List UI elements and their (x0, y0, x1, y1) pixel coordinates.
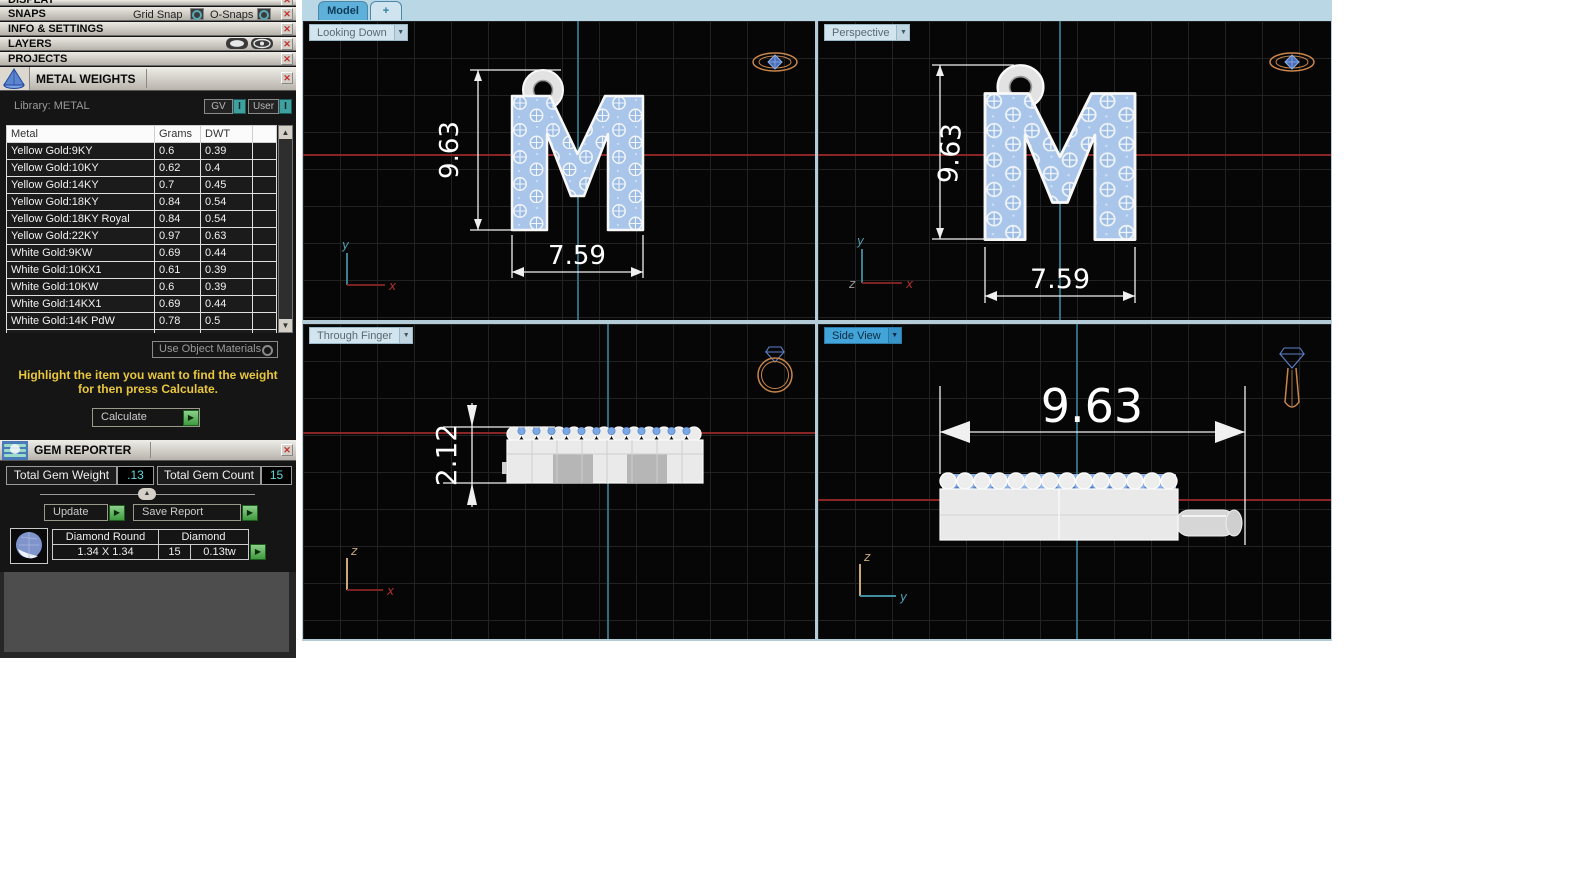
close-icon[interactable]: ✕ (281, 53, 293, 65)
panel-header-gem-reporter[interactable]: GEM REPORTER ✕ (0, 440, 296, 461)
metal-table-cell: 0.84 (155, 211, 201, 228)
metal-table-cell: 0.62 (155, 160, 201, 177)
metal-table-row[interactable]: White Gold:14K PdW0.780.5 (7, 313, 277, 330)
gem-row-go-icon[interactable]: ▶ (250, 544, 266, 560)
save-report-label: Save Report (142, 506, 203, 518)
chevron-down-icon[interactable]: ▼ (399, 327, 413, 344)
metal-table-cell: 0.54 (201, 211, 253, 228)
metal-table-cell: 0.84 (155, 194, 201, 211)
close-icon[interactable]: ✕ (281, 38, 293, 50)
table-scrollbar[interactable]: ▲ ▼ (278, 125, 293, 333)
metal-table-cell: White Gold:10KW (7, 279, 155, 296)
metal-table-cell: Yellow Gold:14KY (7, 177, 155, 194)
metal-table-cell: 0.39 (201, 143, 253, 160)
metal-table-row[interactable]: Yellow Gold:18KY0.840.54 (7, 194, 277, 211)
metal-table-row[interactable]: White Gold:10KX10.610.39 (7, 262, 277, 279)
metal-table-cell: 0.78 (155, 313, 201, 330)
gv-toggle[interactable]: I (233, 99, 246, 114)
calculate-go-icon[interactable]: ▶ (183, 410, 199, 426)
metal-table-row[interactable]: Yellow Gold:9KY0.60.39 (7, 143, 277, 160)
svg-text:z: z (848, 277, 856, 291)
panel-header-display[interactable]: DISPLAY ✕ (0, 0, 296, 6)
metal-table-cell (253, 262, 277, 279)
metal-weights-table: Metal Grams DWT Yellow Gold:9KY0.60.39Ye… (6, 125, 277, 333)
dimension-thickness: 2.12 (430, 424, 463, 486)
svg-text:x: x (386, 584, 395, 598)
save-report-go-icon[interactable]: ▶ (242, 505, 258, 521)
metal-table-cell: White Gold:10KX1 (7, 262, 155, 279)
metal-table-cell: 0.54 (201, 194, 253, 211)
panel-title-metal-weights: METAL WEIGHTS (36, 72, 136, 86)
metal-table-cell (253, 279, 277, 296)
metal-table-row[interactable]: White Gold:10KW0.60.39 (7, 279, 277, 296)
viewport-area: Model + Looking Down ▼ (302, 0, 1332, 641)
use-object-materials-label: Use Object Materials (159, 343, 261, 355)
metal-table-cell: 0.81 (155, 330, 201, 334)
metal-table-cell: 0.44 (201, 245, 253, 262)
dimension-height: 9.63 (435, 121, 465, 179)
close-icon[interactable]: ✕ (281, 0, 293, 6)
dimension-height: 9.63 (933, 122, 968, 184)
gem-reporter-body-empty (4, 572, 289, 652)
viewport-tabbar: Model + (302, 0, 1332, 21)
update-go-icon[interactable]: ▶ (109, 505, 125, 521)
metal-table-cell (253, 296, 277, 313)
close-icon[interactable]: ✕ (281, 444, 293, 456)
dimension-width: 7.59 (548, 241, 606, 271)
panel-title-layers: LAYERS (8, 38, 52, 50)
metal-table-cell: Yellow Gold:22KY (7, 228, 155, 245)
svg-text:x: x (388, 279, 397, 293)
ring-widget-icon[interactable] (1270, 53, 1314, 71)
scroll-down-icon[interactable]: ▼ (279, 319, 292, 332)
metal-table-cell: 0.7 (155, 177, 201, 194)
metal-table-cell (253, 160, 277, 177)
metal-table-cell: 0.39 (201, 279, 253, 296)
svg-text:z: z (863, 550, 871, 564)
sidebar: DISPLAY ✕ SNAPS Grid Snap O-Snaps ✕ INFO… (0, 0, 296, 658)
pendant-profile-view[interactable] (502, 427, 703, 483)
close-icon[interactable]: ✕ (281, 8, 293, 20)
total-gem-weight-value: .13 (117, 466, 154, 485)
panel-title-snaps: SNAPS (8, 8, 46, 20)
axis-indicator: y z x (848, 234, 914, 291)
pendant-side-view[interactable] (940, 473, 1242, 540)
metal-table-row[interactable]: Yellow Gold:22KY0.970.63 (7, 228, 277, 245)
slider-thumb[interactable]: ▲ (138, 488, 156, 500)
gem-material-header: Diamond (158, 529, 249, 545)
chevron-down-icon[interactable]: ▼ (896, 24, 910, 41)
gem-cut-header: Diamond Round (52, 529, 159, 545)
total-gem-weight-label: Total Gem Weight (6, 466, 117, 485)
update-button[interactable]: Update (44, 504, 108, 521)
metal-table-cell (253, 143, 277, 160)
view-label: Perspective (824, 24, 896, 41)
metal-table-row[interactable]: White Gold:18KW0.810.52 (7, 330, 277, 334)
metal-table-cell (253, 245, 277, 262)
metal-table-cell (253, 211, 277, 228)
eye-icon[interactable] (251, 38, 273, 49)
tab-model[interactable]: Model (318, 1, 368, 20)
metal-weights-icon (0, 67, 30, 90)
total-gem-count-value: 15 (261, 466, 292, 485)
metal-table-cell: 0.69 (155, 296, 201, 313)
metal-table-cell: 0.5 (201, 313, 253, 330)
panel-header-info-settings[interactable]: INFO & SETTINGS ✕ (0, 22, 296, 36)
metal-table-cell: White Gold:18KW (7, 330, 155, 334)
metal-table-cell: 0.69 (155, 245, 201, 262)
metal-table-cell: White Gold:9KW (7, 245, 155, 262)
metal-table-row[interactable]: Yellow Gold:10KY0.620.4 (7, 160, 277, 177)
save-report-button[interactable]: Save Report (133, 504, 241, 521)
svg-text:y: y (341, 238, 350, 252)
metal-table-row[interactable]: Yellow Gold:14KY0.70.45 (7, 177, 277, 194)
header-divider (150, 442, 151, 458)
dimension-length: 9.63 (1041, 379, 1143, 433)
gem-reporter-body-frame (0, 572, 296, 658)
total-gem-count-label: Total Gem Count (157, 466, 261, 485)
col-header-dwt[interactable]: DWT (201, 126, 253, 143)
grid-snap-toggle[interactable] (190, 8, 204, 20)
metal-table-cell: 0.45 (201, 177, 253, 194)
update-label: Update (53, 506, 88, 518)
gv-button[interactable]: GV (204, 99, 233, 114)
view-selector-perspective[interactable]: Perspective ▼ (824, 24, 910, 41)
metal-table-cell (253, 313, 277, 330)
user-toggle[interactable]: I (279, 99, 292, 114)
metal-table-cell: 0.39 (201, 262, 253, 279)
dimension-width: 7.59 (1030, 264, 1090, 295)
viewport-looking-down[interactable]: Looking Down ▼ (303, 21, 815, 320)
view-selector-side-view[interactable]: Side View ▼ (824, 327, 902, 344)
metal-table-body: Yellow Gold:9KY0.60.39Yellow Gold:10KY0.… (7, 143, 277, 334)
metal-table-row[interactable]: White Gold:9KW0.690.44 (7, 245, 277, 262)
panel-title-projects: PROJECTS (8, 53, 67, 65)
metal-table-header-row: Metal Grams DWT (7, 126, 277, 143)
col-header-metal[interactable]: Metal (7, 126, 155, 143)
metal-table-cell: 0.4 (201, 160, 253, 177)
gem-reporter-icon (2, 441, 28, 460)
panel-title-display: DISPLAY (8, 0, 55, 6)
svg-text:x: x (905, 277, 914, 291)
metal-table-cell (253, 228, 277, 245)
user-button[interactable]: User (248, 99, 279, 114)
ring-widget-icon[interactable] (753, 53, 797, 71)
metal-table-cell (253, 177, 277, 194)
panel-header-snaps[interactable]: SNAPS Grid Snap O-Snaps ✕ (0, 7, 296, 21)
panel-title-info-settings: INFO & SETTINGS (8, 23, 103, 35)
metal-table-cell: 0.97 (155, 228, 201, 245)
axis-indicator: y x (341, 238, 397, 293)
metal-table-cell: Yellow Gold:18KY (7, 194, 155, 211)
metal-table-cell: 0.52 (201, 330, 253, 334)
metal-table-cell: Yellow Gold:10KY (7, 160, 155, 177)
library-label: Library: METAL (14, 100, 90, 112)
axis-indicator: z x (347, 544, 395, 598)
gem-weight-value: 0.13tw (190, 544, 249, 560)
chevron-down-icon[interactable]: ▼ (394, 24, 408, 41)
metal-table-cell (253, 330, 277, 334)
o-snaps-toggle[interactable] (257, 8, 271, 20)
view-label: Side View (824, 327, 888, 344)
panel-header-metal-weights[interactable]: METAL WEIGHTS ✕ (0, 67, 296, 91)
panel-title-gem-reporter: GEM REPORTER (34, 443, 131, 457)
gem-count-value: 15 (158, 544, 191, 560)
svg-text:z: z (350, 544, 358, 558)
viewport-through-finger[interactable]: Through Finger ▼ (303, 324, 815, 639)
metal-table-cell (253, 194, 277, 211)
viewport-side-view[interactable]: Side View ▼ (818, 324, 1331, 639)
col-header-grams[interactable]: Grams (155, 126, 201, 143)
metal-table-cell: White Gold:14KX1 (7, 296, 155, 313)
add-tab-icon: + (383, 5, 389, 17)
metal-table-cell: 0.61 (155, 262, 201, 279)
view-selector-looking-down[interactable]: Looking Down ▼ (309, 24, 408, 41)
axis-indicator: z y (860, 550, 908, 604)
svg-text:y: y (856, 234, 865, 248)
metal-table-cell: 0.6 (155, 143, 201, 160)
grid-snap-label: Grid Snap (133, 8, 183, 22)
metal-table-row[interactable]: White Gold:14KX10.690.44 (7, 296, 277, 313)
radio-circle-icon (262, 345, 273, 356)
ring-widget-icon[interactable] (1280, 348, 1304, 407)
scroll-up-icon[interactable]: ▲ (279, 126, 292, 139)
hint-text-line2: for then press Calculate. (0, 382, 296, 396)
gem-size-value: 1.34 X 1.34 (52, 544, 159, 560)
chevron-down-icon[interactable]: ▼ (888, 327, 902, 344)
metal-table-cell: Yellow Gold:18KY Royal (7, 211, 155, 228)
metal-table-row[interactable]: Yellow Gold:18KY Royal0.840.54 (7, 211, 277, 228)
calculate-label: Calculate (101, 411, 147, 423)
use-object-materials-button[interactable]: Use Object Materials (152, 341, 278, 358)
metal-table-cell: 0.6 (155, 279, 201, 296)
ring-widget-icon[interactable] (758, 347, 792, 392)
tab-model-label: Model (327, 5, 359, 17)
close-icon[interactable]: ✕ (281, 72, 293, 84)
layer-visibility-icon[interactable] (226, 38, 248, 49)
o-snaps-label: O-Snaps (210, 8, 253, 22)
view-selector-through-finger[interactable]: Through Finger ▼ (309, 327, 413, 344)
close-icon[interactable]: ✕ (281, 23, 293, 35)
metal-table-cell: 0.44 (201, 296, 253, 313)
viewport-perspective[interactable]: Perspective ▼ 9.63 7.59 (818, 21, 1331, 320)
metal-table-cell: White Gold:14K PdW (7, 313, 155, 330)
header-divider (146, 69, 147, 88)
svg-text:y: y (899, 590, 908, 604)
panel-header-projects[interactable]: PROJECTS ✕ (0, 52, 296, 66)
metal-table-cell: Yellow Gold:9KY (7, 143, 155, 160)
tab-add[interactable]: + (370, 1, 402, 20)
panel-header-layers[interactable]: LAYERS ✕ (0, 37, 296, 51)
view-label: Through Finger (309, 327, 399, 344)
gem-thumbnail[interactable] (10, 528, 48, 564)
metal-table-cell: 0.63 (201, 228, 253, 245)
hint-text-line1: Highlight the item you want to find the … (0, 368, 296, 382)
view-label: Looking Down (309, 24, 394, 41)
app-window: DISPLAY ✕ SNAPS Grid Snap O-Snaps ✕ INFO… (0, 0, 1594, 879)
